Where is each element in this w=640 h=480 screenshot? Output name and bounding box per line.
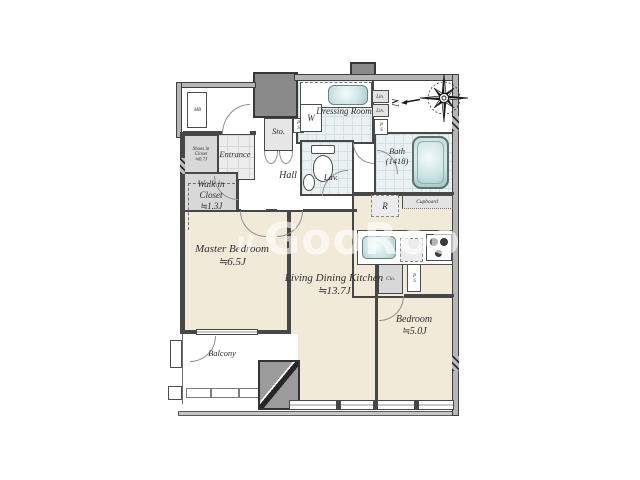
kitchen-dashed-space — [400, 238, 423, 262]
north-arrow-icon: N — [392, 97, 420, 108]
compass: N — [392, 70, 504, 137]
room-size: ≒13.7J — [317, 285, 350, 297]
meter-box-label: MB — [193, 107, 200, 112]
room-name: Walk in Closet — [198, 179, 225, 200]
entrance-label: Entrance — [213, 149, 257, 159]
room-size: (1418) — [386, 156, 409, 166]
room-name: Shoes in Closet — [193, 146, 210, 157]
meter-box: MB — [187, 92, 207, 128]
pipe-space-label: PS — [379, 122, 383, 132]
wic-label: Walk in Closet ≒1.3J — [187, 179, 235, 212]
window-stub — [373, 400, 378, 410]
pipe-space-box: PS — [374, 119, 388, 135]
wall-entrance-top — [250, 131, 256, 135]
refrigerator-label: R — [382, 201, 388, 212]
master-bedroom-label: Master Bedroom ≒6.5J — [195, 243, 269, 270]
balcony-sliding-door — [196, 329, 258, 335]
bedroom-label: Bedroom ≒5.0J — [370, 314, 458, 338]
room-size: ≒1.3J — [200, 201, 223, 211]
room-name: Bedroom — [396, 314, 432, 325]
kitchen-sink — [362, 236, 396, 259]
pipe-space-box: PS — [407, 264, 421, 292]
compass-rose-icon: N — [392, 70, 504, 132]
toilet-tank — [311, 145, 335, 154]
window-stub — [336, 400, 341, 410]
balcony-side-box — [170, 340, 182, 368]
linen-box: Lin. — [372, 90, 389, 103]
balcony-side-box — [168, 386, 182, 400]
balcony-label: Balcony — [196, 348, 248, 358]
room-size: ≒5.0J — [401, 326, 426, 337]
gas-stove — [426, 234, 452, 261]
linen-label: Lin. — [377, 94, 385, 99]
wall-hatch — [452, 356, 459, 371]
pipe-space-label: PS — [412, 273, 416, 283]
wall-band-corridor-left — [176, 82, 182, 138]
window-stub — [414, 400, 419, 410]
linen-label: Lin. — [377, 108, 385, 113]
wall-hall-south — [303, 209, 357, 212]
room-size: ≒6.5J — [218, 256, 246, 268]
balcony-railing — [186, 388, 264, 398]
room-name: Living Dining Kitchen — [285, 272, 383, 284]
railing-post — [210, 389, 212, 397]
dressing-room-label: Dressing Room — [314, 106, 374, 117]
wall-bedroom-top — [404, 294, 454, 297]
storage-label: Sto. — [264, 126, 293, 136]
wall-band-bottom — [178, 411, 459, 416]
railing-post — [238, 389, 240, 397]
hall-label: Hall — [266, 170, 310, 182]
floor-plan: MB PS W Lin. Lin. PS R Cupboard — [0, 0, 640, 480]
cupboard-label: Cupboard — [417, 199, 439, 205]
room-name: Bath — [389, 146, 405, 156]
compass-north-label: N — [392, 97, 402, 108]
south-windows — [289, 400, 454, 410]
cupboard: Cupboard — [402, 195, 453, 209]
wall-entrance-top — [183, 131, 222, 135]
wall-hall-south — [266, 209, 277, 212]
bath-label: Bath (1418) — [376, 146, 418, 167]
vanity-sink — [328, 85, 368, 105]
wall-band-corridor-top — [176, 82, 256, 88]
shaft-block — [253, 72, 298, 118]
lav-label: Lav. — [310, 172, 352, 182]
ldk-label: Living Dining Kitchen ≒13.7J — [280, 272, 388, 299]
refrigerator-space: R — [371, 195, 399, 217]
linen-box: Lin. — [372, 104, 389, 117]
room-size: ≒0.7J — [195, 156, 208, 162]
room-name: Master Bedroom — [195, 243, 269, 255]
